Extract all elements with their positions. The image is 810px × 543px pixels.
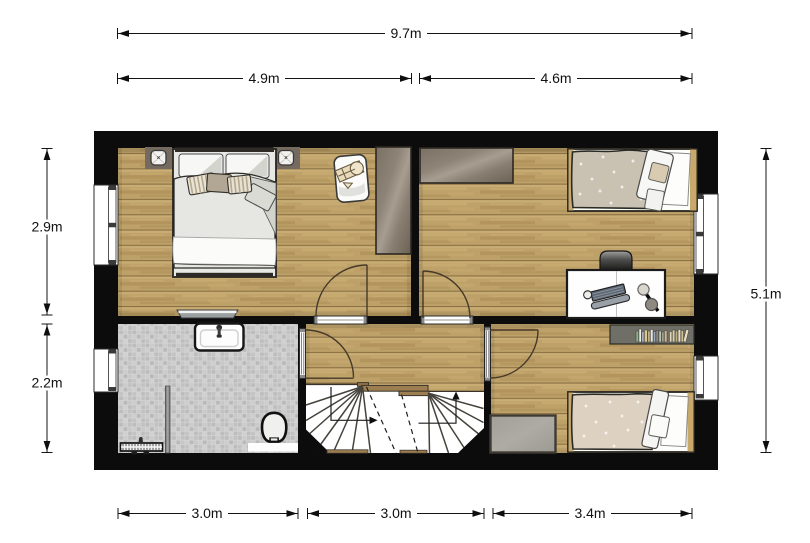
svg-text:4.6m: 4.6m: [540, 70, 571, 86]
svg-text:2.9m: 2.9m: [31, 219, 62, 235]
svg-text:9.7m: 9.7m: [390, 25, 421, 41]
svg-text:3.4m: 3.4m: [574, 505, 605, 521]
svg-text:5.1m: 5.1m: [750, 286, 781, 302]
svg-text:2.2m: 2.2m: [31, 375, 62, 391]
svg-text:4.9m: 4.9m: [248, 70, 279, 86]
svg-text:3.0m: 3.0m: [380, 505, 411, 521]
svg-text:3.0m: 3.0m: [191, 505, 222, 521]
